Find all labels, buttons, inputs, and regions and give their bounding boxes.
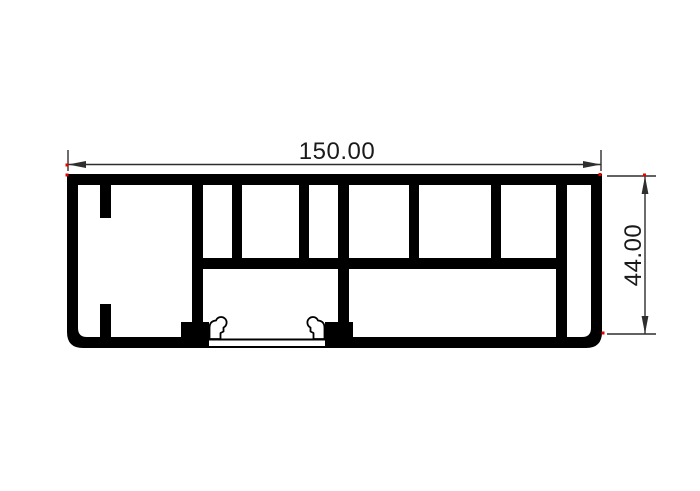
defpoint-top-left-corner	[66, 174, 69, 177]
top-rib-b	[299, 185, 309, 263]
width-dim-arrow-right	[583, 161, 601, 168]
width-dimension-label: 150.00	[299, 138, 375, 165]
top-rib-a	[232, 185, 242, 263]
profile-drawing: 150.00 44.00	[0, 0, 700, 491]
channel-hooks	[210, 317, 325, 339]
defpoint-bottom-right-corner	[602, 332, 605, 335]
channel-left-foot	[181, 322, 209, 338]
drawing-canvas: 150.00 44.00	[0, 0, 700, 491]
left-top-stub	[100, 185, 111, 218]
height-dim-arrow-up	[642, 176, 649, 194]
defpoint-height-top	[643, 174, 646, 177]
left-bottom-stub	[100, 304, 111, 337]
vertical-wall-1	[192, 185, 203, 325]
height-dimension-label: 44.00	[620, 224, 647, 287]
width-dim-arrow-left	[68, 161, 86, 168]
defpoint-top-right-corner	[599, 173, 602, 176]
channel-hook-left	[210, 317, 227, 339]
channel-hook-right	[307, 317, 324, 339]
vertical-wall-2	[338, 185, 349, 325]
channel-right-foot	[325, 322, 353, 338]
channel-floor-top-line	[209, 339, 325, 341]
height-dimension: 44.00	[607, 176, 656, 334]
defpoint-width-left	[66, 164, 69, 167]
height-dim-arrow-down	[642, 316, 649, 334]
channel-floor-bottom-line	[209, 346, 325, 348]
profile-body	[67, 174, 602, 348]
middle-wall	[192, 258, 567, 269]
top-rib-d	[491, 185, 501, 263]
width-dimension: 150.00	[68, 138, 601, 171]
top-rib-c	[409, 185, 419, 263]
